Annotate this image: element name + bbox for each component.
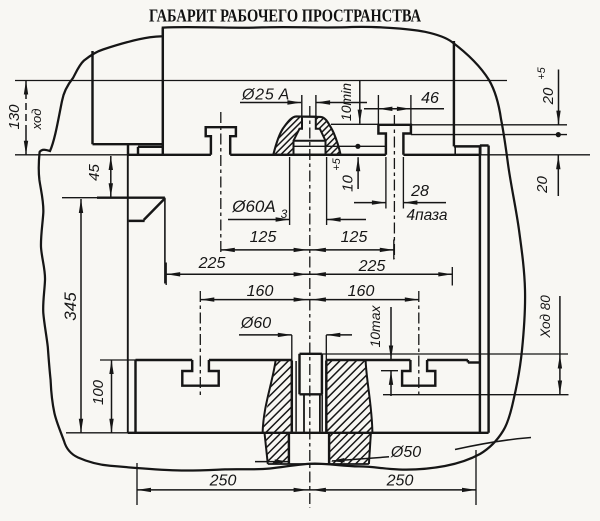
- svg-text:28: 28: [410, 183, 429, 200]
- svg-text:225: 225: [358, 258, 386, 275]
- svg-text:ход: ход: [29, 109, 44, 131]
- svg-text:ГАБАРИТ РАБОЧЕГО ПРОСТРАНСТВА: ГАБАРИТ РАБОЧЕГО ПРОСТРАНСТВА: [149, 6, 421, 26]
- svg-text:20: 20: [540, 87, 557, 105]
- svg-text:125: 125: [250, 229, 277, 246]
- svg-text:Ход 80: Ход 80: [538, 295, 553, 339]
- svg-text:Ø25 A: Ø25 A: [241, 87, 290, 104]
- svg-text:345: 345: [61, 292, 80, 321]
- svg-text:Ø60: Ø60: [240, 315, 271, 332]
- svg-text:45: 45: [86, 164, 103, 181]
- svg-text:Ø50: Ø50: [390, 444, 421, 461]
- svg-text:160: 160: [348, 283, 375, 300]
- svg-text:+5: +5: [331, 157, 343, 170]
- svg-text:130: 130: [6, 104, 23, 130]
- svg-text:Ø60A: Ø60A: [231, 197, 275, 216]
- svg-text:20: 20: [534, 176, 551, 194]
- svg-text:4паза: 4паза: [406, 207, 447, 224]
- svg-text:160: 160: [247, 283, 274, 300]
- svg-text:+5: +5: [536, 66, 548, 79]
- svg-text:250: 250: [386, 473, 414, 490]
- svg-text:225: 225: [198, 255, 226, 272]
- svg-text:10max: 10max: [367, 304, 383, 347]
- svg-text:125: 125: [341, 229, 368, 246]
- svg-text:250: 250: [209, 473, 237, 490]
- svg-text:10min: 10min: [338, 83, 354, 121]
- svg-text:3: 3: [281, 207, 288, 221]
- svg-text:10: 10: [340, 175, 357, 192]
- svg-text:46: 46: [421, 90, 439, 107]
- svg-text:100: 100: [90, 379, 107, 405]
